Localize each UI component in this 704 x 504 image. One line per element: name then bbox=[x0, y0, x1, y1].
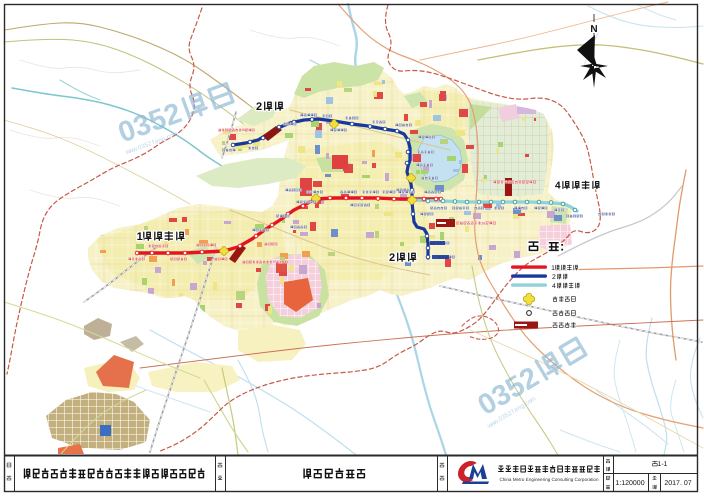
svg-text::: : bbox=[560, 239, 564, 254]
svg-text:1: 1 bbox=[137, 231, 143, 243]
svg-text:1: 1 bbox=[280, 260, 282, 264]
svg-text:2: 2 bbox=[389, 252, 395, 264]
svg-text:N: N bbox=[590, 24, 597, 35]
svg-text:6: 6 bbox=[483, 221, 485, 225]
svg-text:1: 1 bbox=[551, 265, 555, 272]
svg-text:2: 2 bbox=[552, 274, 556, 281]
svg-text:1:120000: 1:120000 bbox=[615, 480, 644, 487]
svg-text:2017. 07: 2017. 07 bbox=[664, 480, 691, 487]
svg-text:1: 1 bbox=[664, 461, 668, 468]
svg-text:4: 4 bbox=[552, 283, 556, 290]
svg-text:China Metro Engineering Consul: China Metro Engineering Consulting Corpo… bbox=[499, 477, 599, 482]
svg-text:4: 4 bbox=[555, 181, 561, 192]
svg-text:0: 0 bbox=[243, 128, 245, 132]
svg-text:2: 2 bbox=[256, 101, 262, 113]
